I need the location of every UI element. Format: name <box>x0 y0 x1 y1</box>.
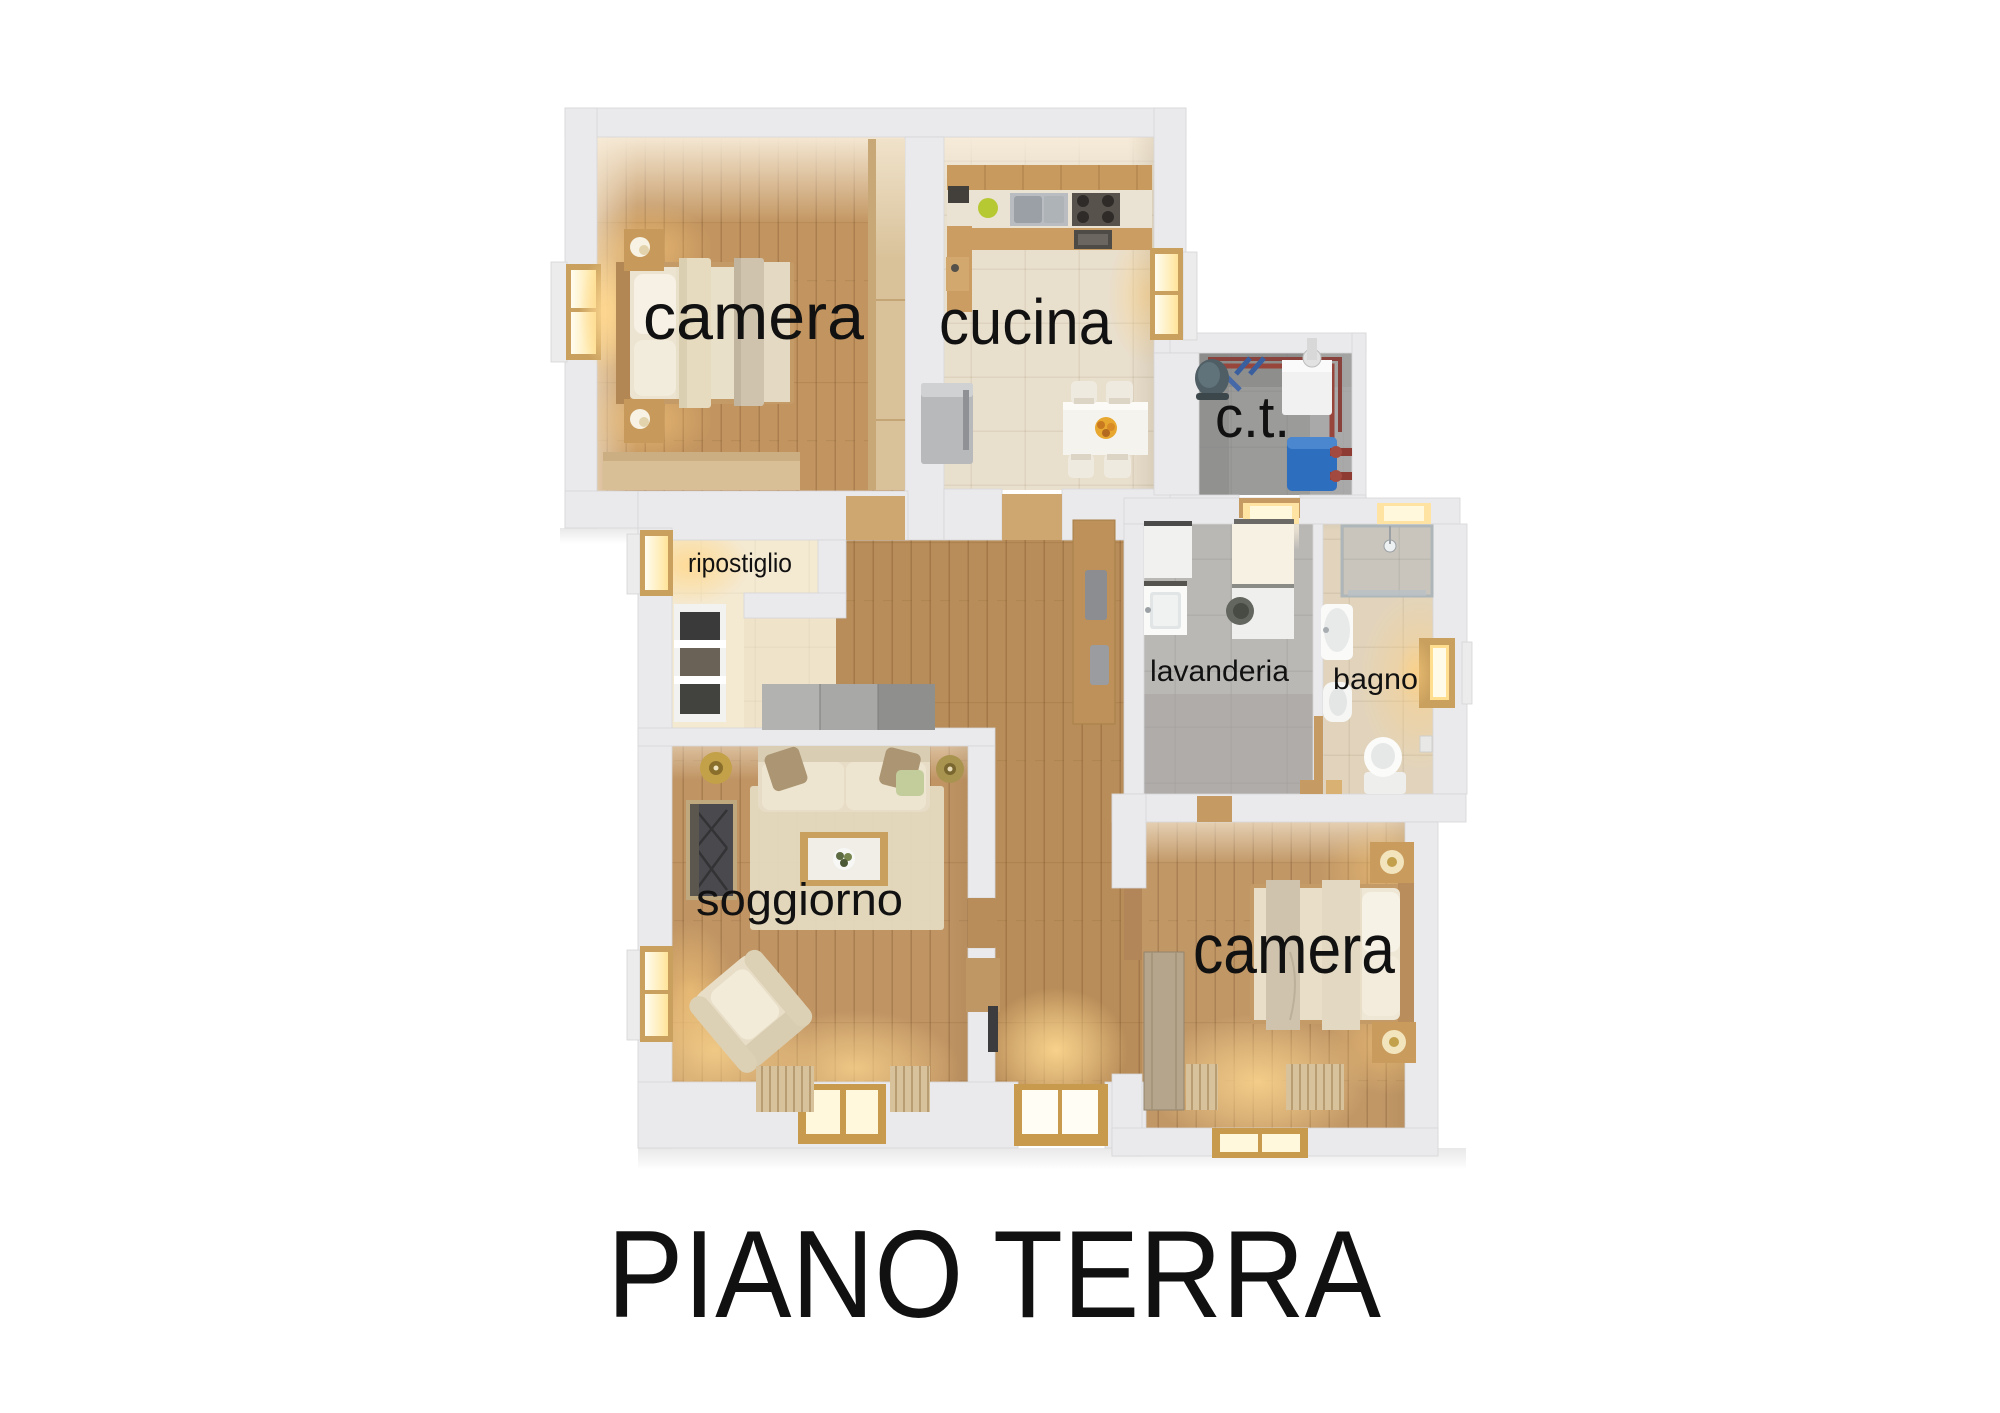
svg-text:camera: camera <box>643 280 865 353</box>
svg-text:lavanderia: lavanderia <box>1150 655 1289 688</box>
svg-text:camera: camera <box>1193 910 1395 988</box>
svg-text:c.t.: c.t. <box>1215 385 1290 450</box>
svg-text:cucina: cucina <box>939 286 1112 358</box>
svg-text:soggiorno: soggiorno <box>696 874 903 925</box>
svg-text:bagno: bagno <box>1333 663 1418 696</box>
svg-text:ripostiglio: ripostiglio <box>688 548 792 578</box>
svg-text:PIANO TERRA: PIANO TERRA <box>607 1206 1381 1344</box>
